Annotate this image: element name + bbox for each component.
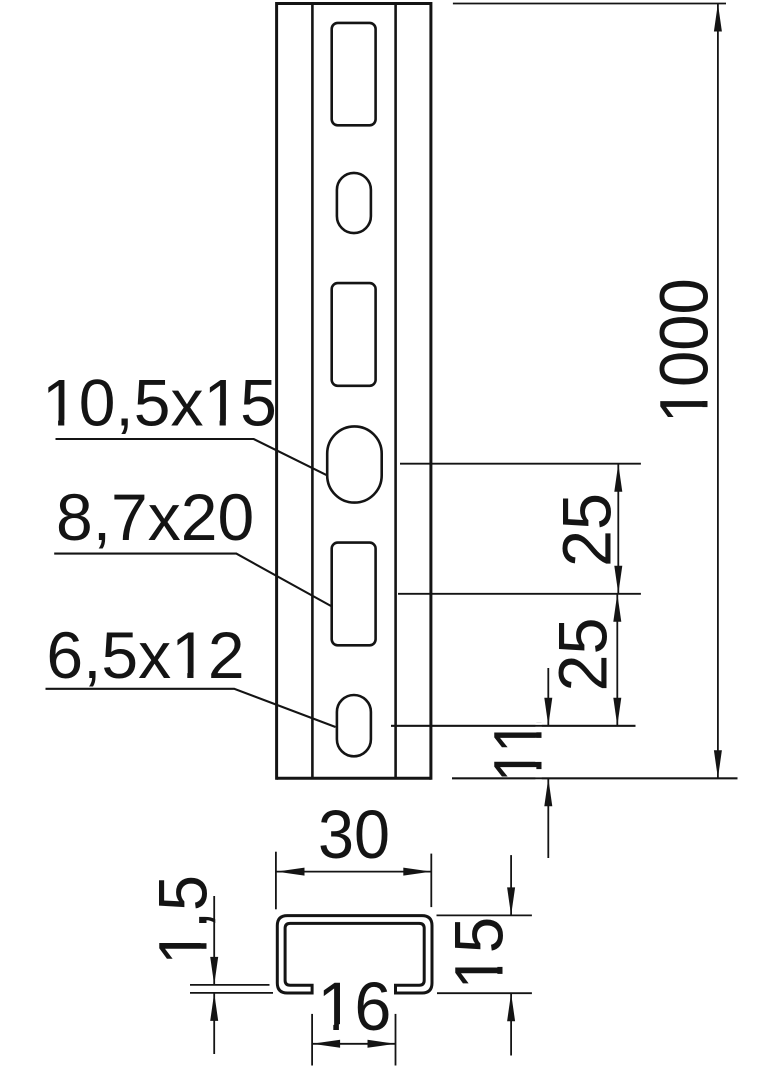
svg-text:25: 25 <box>545 618 622 692</box>
svg-text:8,7x20: 8,7x20 <box>56 480 254 554</box>
svg-text:6,5x12: 6,5x12 <box>46 618 244 692</box>
svg-text:25: 25 <box>548 493 625 567</box>
svg-text:30: 30 <box>318 796 390 873</box>
svg-text:16: 16 <box>317 968 391 1045</box>
svg-text:11: 11 <box>479 719 556 782</box>
svg-text:1000: 1000 <box>645 278 722 423</box>
svg-text:1,5: 1,5 <box>145 875 222 965</box>
svg-text:10,5x15: 10,5x15 <box>42 366 277 440</box>
svg-text:15: 15 <box>441 917 518 990</box>
